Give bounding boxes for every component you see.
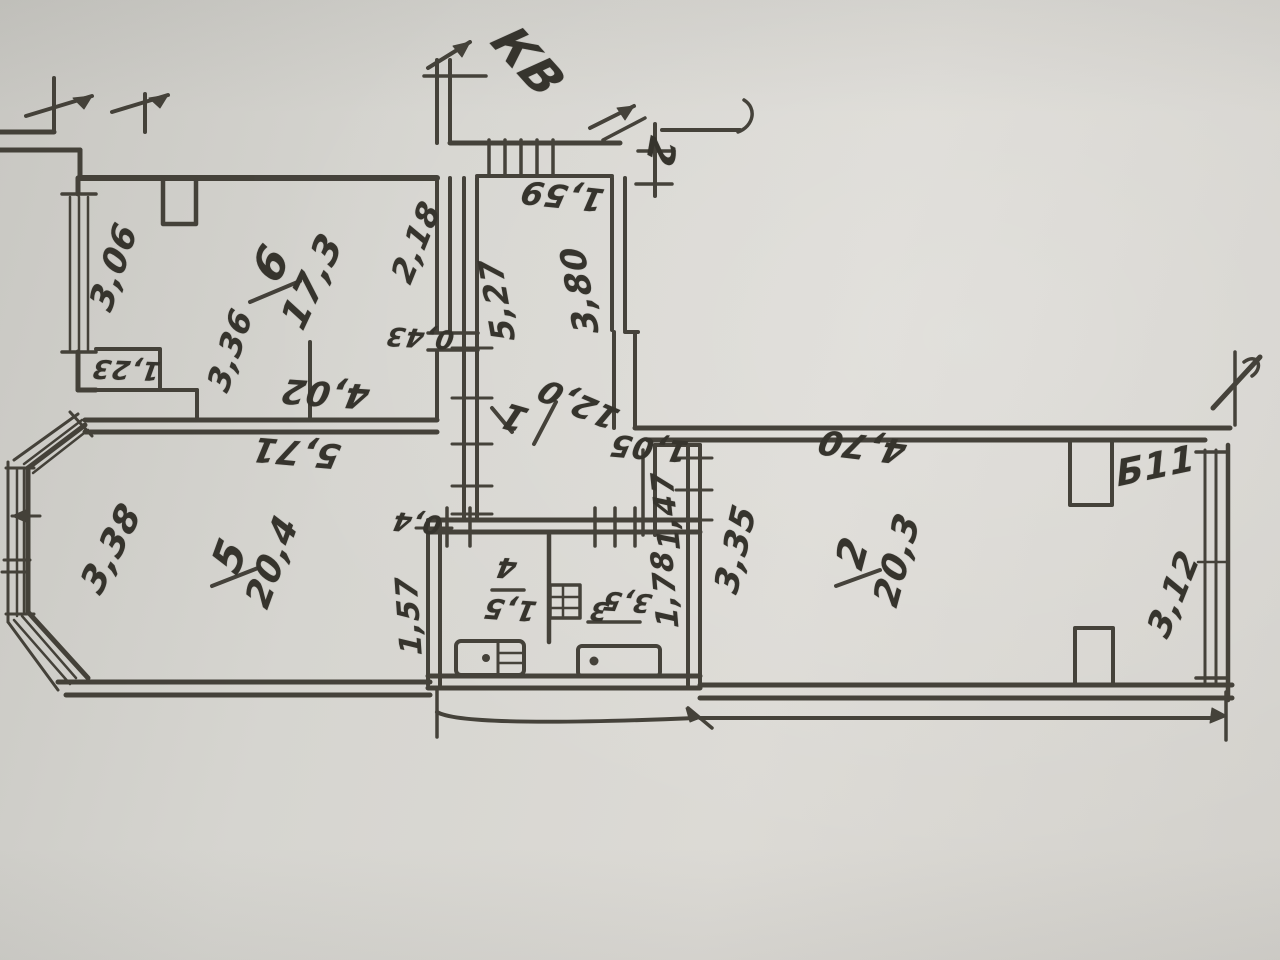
dim-0-43: 0,43	[384, 322, 457, 351]
stairwell-walls	[0, 78, 168, 178]
dim-0-4: 0,4	[390, 507, 444, 537]
bathtub-drain	[590, 657, 599, 666]
dim-4-70: 4,70	[814, 424, 910, 468]
dim-4-02: 4,02	[278, 373, 372, 413]
washbasin-symbol	[550, 585, 580, 618]
room4-area: 1,5	[481, 593, 539, 624]
room3-area: 3,5	[600, 586, 654, 615]
dim-1-59: 1,59	[517, 176, 607, 216]
floor-plan-sheet: КВ 2 1,59 3,80 5,27 2,18 3,06 1,23 3,36 …	[0, 0, 1280, 960]
dim-1-57: 1,57	[392, 576, 428, 655]
dim-5-71: 5,71	[249, 431, 344, 472]
balcony-glazing	[1196, 352, 1260, 700]
dim-1-47: 1,47	[648, 472, 686, 550]
dim-1-23: 1,23	[90, 355, 162, 383]
dim-1-05: 1,05	[607, 429, 691, 465]
